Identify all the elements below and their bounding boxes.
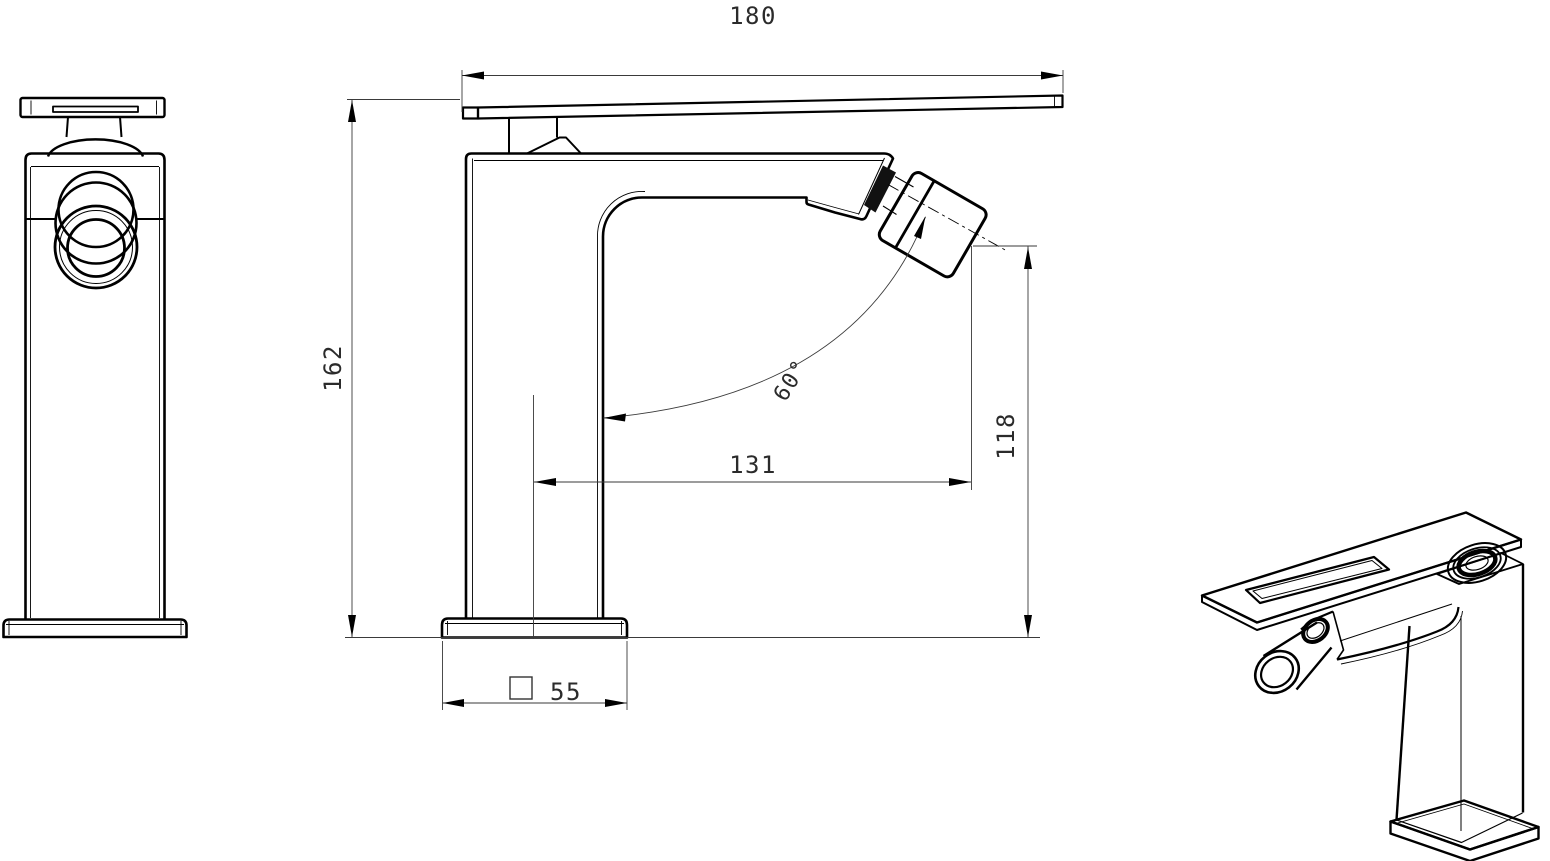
spout-reach-label: 131 [729, 451, 777, 479]
side-handle-lever [478, 96, 1063, 119]
technical-drawing-canvas: 60° 180 162 131 [0, 0, 1550, 861]
side-handle-tip [463, 108, 478, 119]
overall-width-label: 180 [729, 2, 777, 30]
square-symbol [510, 677, 532, 699]
side-base [442, 619, 627, 638]
persp-aerator-body [1264, 623, 1332, 690]
side-spout-neck [864, 166, 896, 213]
perspective-view [1202, 513, 1539, 861]
dim-spout-reach: 131 [534, 246, 972, 639]
persp-arm-underside [1337, 607, 1459, 660]
dim-spout-angle: 60° [604, 216, 926, 422]
spout-angle-label: 60° [769, 355, 814, 406]
side-view: 60° 180 162 131 [319, 2, 1063, 710]
dim-base-size: 55 [443, 641, 628, 710]
front-body [26, 154, 165, 620]
dim-overall-width: 180 [462, 2, 1063, 112]
base-size-label: 55 [550, 678, 582, 706]
front-handle-slot [53, 107, 138, 113]
technical-drawing-page: 60° 180 162 131 [0, 0, 1550, 861]
overall-height-label: 162 [319, 344, 347, 392]
persp-aerator-outlet [1247, 642, 1307, 701]
front-handle-plate [21, 98, 165, 117]
front-base [4, 620, 187, 638]
persp-aerator-collar [1299, 614, 1333, 646]
side-handle-stem [527, 138, 581, 154]
front-view [4, 98, 187, 637]
persp-handle-plate [1202, 513, 1521, 623]
spout-height-label: 118 [992, 412, 1020, 460]
side-body-profile [466, 154, 893, 620]
dim-spout-height: 118 [973, 246, 1037, 637]
